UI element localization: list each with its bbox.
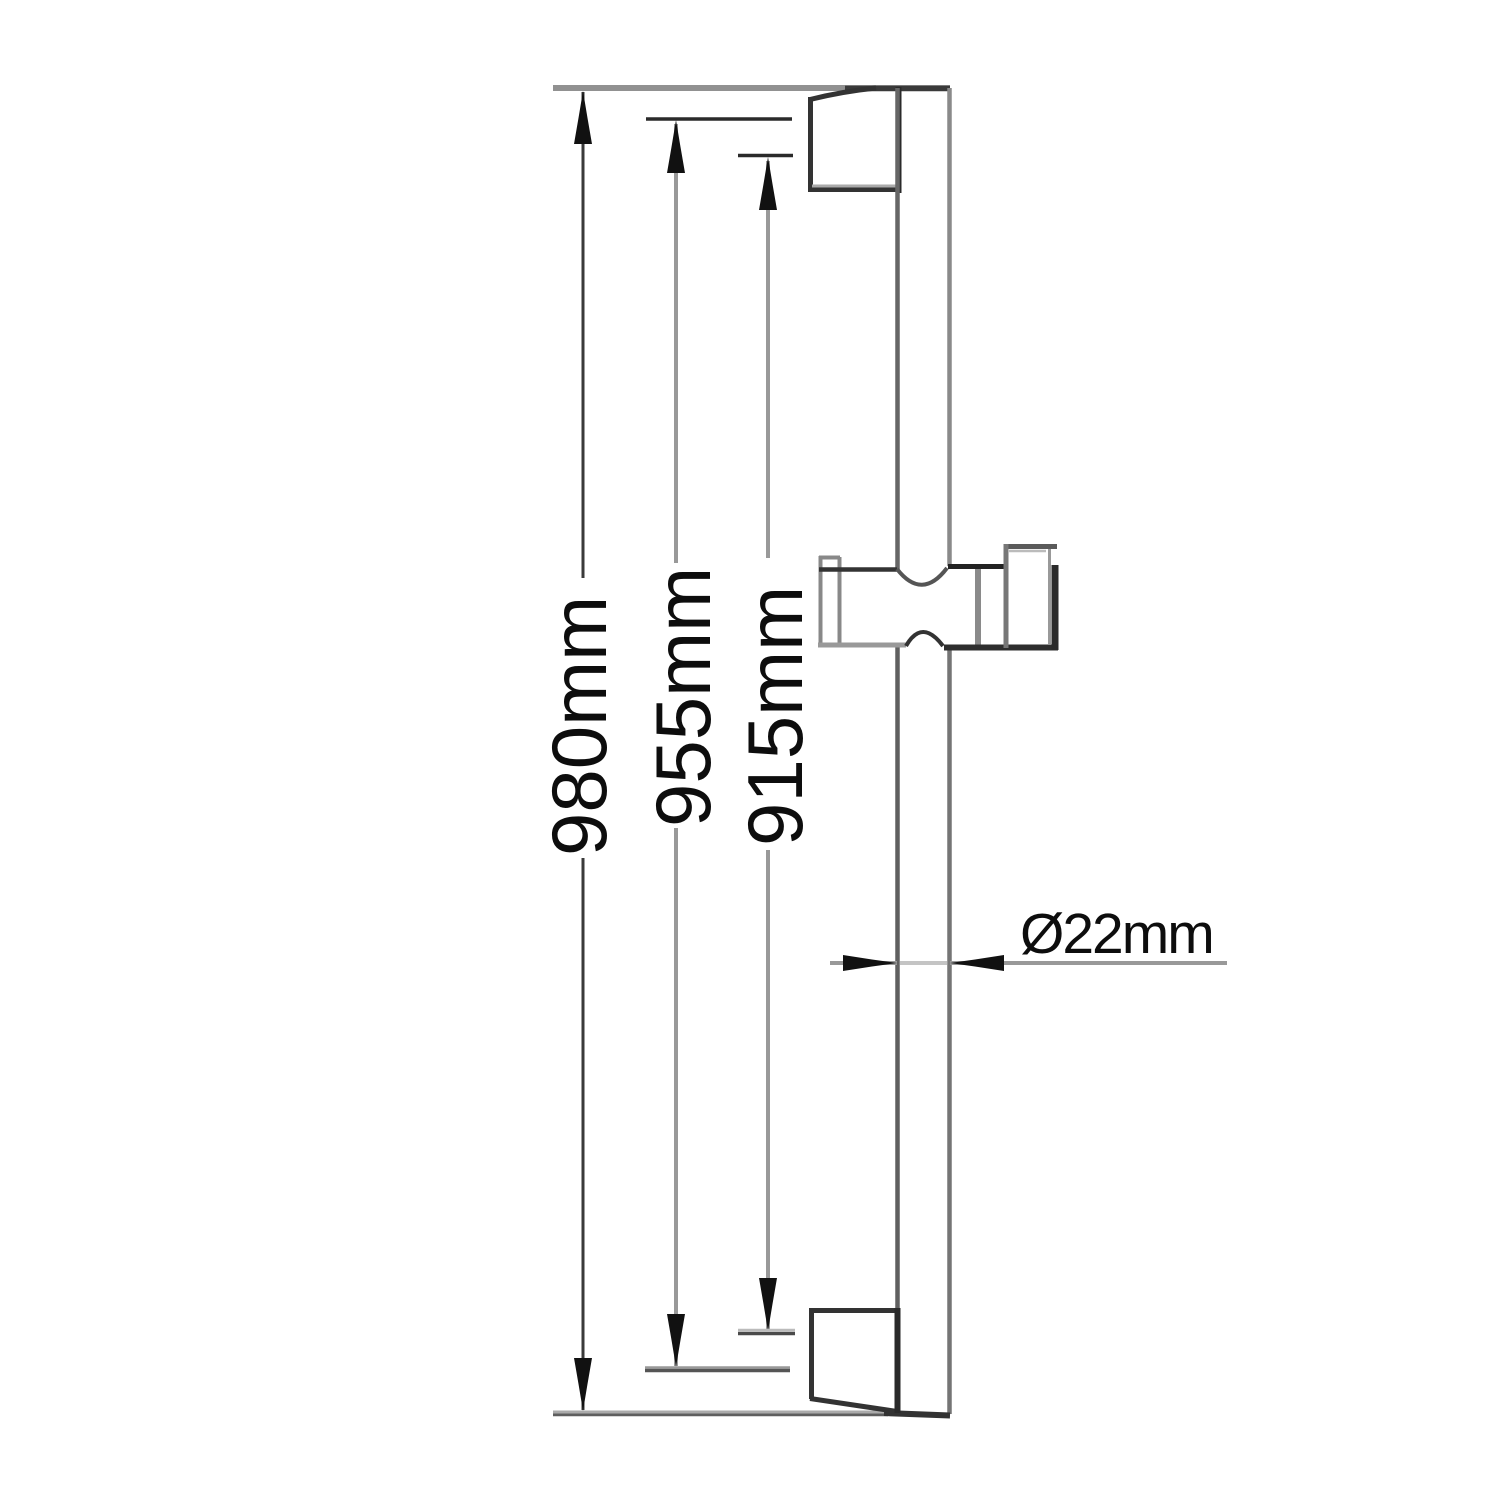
svg-text:Ø22mm: Ø22mm bbox=[1020, 902, 1213, 966]
svg-text:980mm: 980mm bbox=[535, 596, 623, 856]
svg-text:915mm: 915mm bbox=[731, 586, 819, 846]
svg-text:955mm: 955mm bbox=[639, 567, 727, 827]
